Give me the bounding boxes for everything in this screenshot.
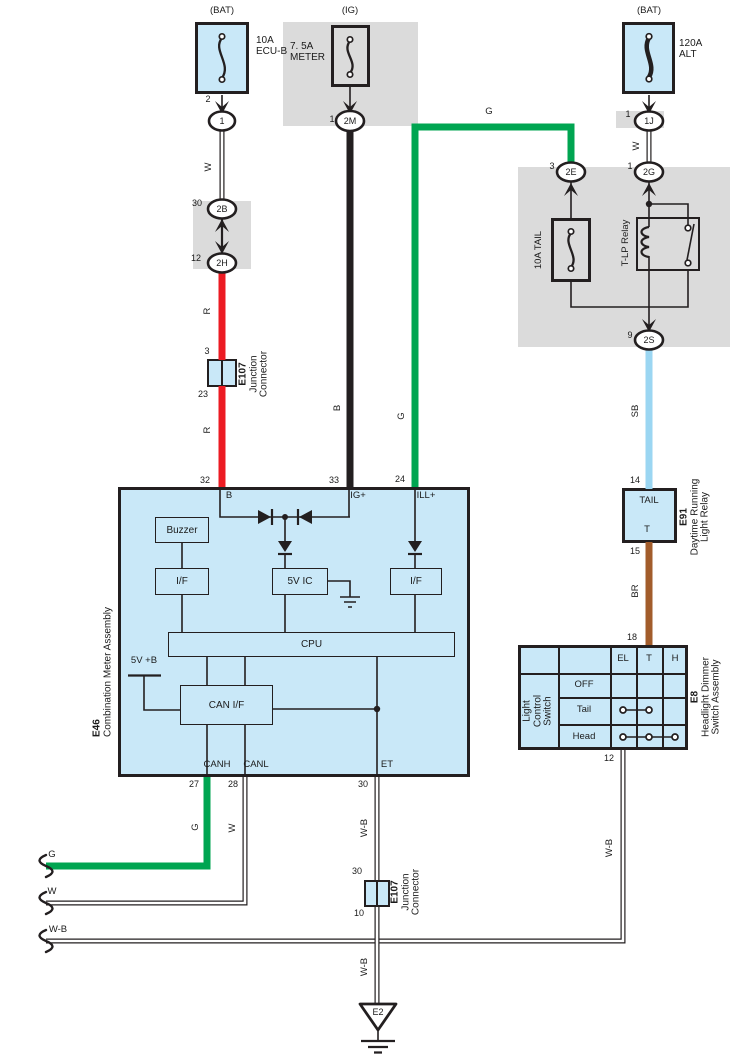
diode-ill: [408, 541, 422, 554]
relay-contact-bottom: [685, 260, 691, 266]
e8-col-el: EL: [617, 654, 629, 664]
connector-2m-label: 2M: [344, 116, 357, 126]
e107-label-bottom: E107 Junction Connector: [390, 869, 422, 915]
wire-label-w: W: [228, 824, 238, 833]
pin-9-2s: 9: [627, 330, 632, 340]
et-junction-dot: [374, 706, 380, 712]
diode-junction-dot: [282, 514, 288, 520]
wire-label-w: W: [204, 163, 214, 172]
pin-1-2g: 1: [627, 161, 632, 171]
component-code: E107: [390, 869, 401, 915]
component-code: E46: [93, 607, 104, 737]
source-label-bat-right: (BAT): [637, 6, 661, 16]
e46-label: E46 Combination Meter Assembly: [93, 607, 114, 737]
fuse-rating: 7. 5A: [290, 41, 325, 52]
wire-label-w: W: [48, 887, 57, 897]
component-name: Combination Meter Assembly: [103, 607, 114, 737]
switch-name-line: Switch: [543, 695, 554, 727]
pin-1-1j: 1: [625, 109, 630, 119]
supply-5v-label: 5V +B: [131, 656, 157, 666]
e8-row-tail: Tail: [577, 705, 591, 715]
e107-label-top: E107 Junction Connector: [238, 351, 270, 397]
tlp-relay-label: T-LP Relay: [621, 220, 631, 267]
wire-label-g: G: [48, 850, 55, 860]
terminal-ig: IG+: [350, 491, 366, 501]
pin-30-et: 30: [358, 779, 368, 789]
meter-internal-lines: [144, 487, 415, 777]
fuse-rating: 10A: [256, 35, 287, 46]
e91-label: E91 Daytime Running Light Relay: [679, 479, 711, 556]
component-name: Light Relay: [700, 479, 711, 556]
pin-28: 28: [228, 779, 238, 789]
wire-w-canl: [46, 777, 245, 903]
terminal-ill: ILL+: [417, 491, 436, 501]
wire-label-g: G: [485, 107, 492, 117]
pin-30-e107b: 30: [352, 866, 362, 876]
wire-label-wb: W-B: [605, 839, 615, 857]
connector-2g-label: 2G: [643, 167, 655, 177]
wire-wb-bottom-run: [46, 750, 623, 941]
e8-switch-name: Light Control Switch: [522, 695, 554, 727]
pin-2: 2: [205, 94, 210, 104]
pin-32: 32: [200, 475, 210, 485]
switch-contact-lines: [623, 710, 675, 737]
component-name: Connector: [411, 869, 422, 915]
wire-g-illumination: [415, 127, 571, 487]
connector-1-label: 1: [219, 116, 224, 126]
fuse-name: METER: [290, 52, 325, 63]
relay-coil-symbol: [642, 227, 650, 257]
ground-e2-label: E2: [372, 1007, 383, 1017]
wire-label-b: B: [333, 405, 343, 411]
fuse-symbol-tail: [568, 229, 573, 271]
wire-g-canh: [46, 777, 207, 866]
wire-label-sb: SB: [631, 405, 641, 418]
pin-24: 24: [395, 474, 405, 484]
pin-3-2e: 3: [549, 161, 554, 171]
source-label-ig: (IG): [342, 6, 358, 16]
fuse-rating: 120A: [679, 38, 702, 49]
e8-label: E8 Headlight Dimmer Switch Assembly: [690, 657, 722, 737]
terminal-canh: CANH: [204, 760, 231, 770]
fuse-symbol-meter: [347, 37, 352, 77]
diode-to-5v-ic: [278, 541, 292, 554]
switch-name-line: Light: [522, 695, 533, 727]
source-label-bat-left: (BAT): [210, 6, 234, 16]
e91-tail-title: TAIL: [639, 496, 658, 506]
component-name: Switch Assembly: [711, 657, 722, 737]
diode-from-b: [258, 509, 272, 525]
e91-terminal-t: T: [644, 525, 650, 535]
connector-2b-label: 2B: [216, 204, 227, 214]
fuse-symbol-alt: [646, 34, 652, 82]
diode-from-ig: [298, 509, 312, 525]
pin-23-e107: 23: [198, 389, 208, 399]
wire-label-wb: W-B: [49, 925, 67, 935]
tail-fuse-label: 10A TAIL: [534, 231, 544, 269]
connector-2h-label: 2H: [216, 258, 228, 268]
terminal-canl: CANL: [243, 760, 268, 770]
e8-col-h: H: [672, 654, 679, 664]
connector-1j-label: 1J: [644, 116, 654, 126]
fuse-meter-name: 7. 5A METER: [290, 41, 325, 63]
wire-label-g: G: [191, 823, 201, 830]
terminal-et: ET: [381, 760, 393, 770]
wire-label-wb: W-B: [360, 819, 370, 837]
ground-symbol-5v-ic: [340, 597, 360, 607]
wire-label-r: R: [203, 427, 213, 434]
pin-30-2b: 30: [192, 198, 202, 208]
e8-col-t: T: [646, 654, 652, 664]
pin-12-2h: 12: [191, 253, 201, 263]
wire-label-r: R: [203, 308, 213, 315]
component-code: E8: [690, 657, 701, 737]
fuse-ecu-b-name: 10A ECU-B: [256, 35, 287, 57]
fuse-name: ECU-B: [256, 46, 287, 57]
wire-label-br: BR: [631, 584, 641, 597]
connector-arrows: [215, 101, 656, 332]
pin-1-2m: 1: [329, 114, 334, 124]
pin-33: 33: [329, 475, 339, 485]
component-name: Connector: [259, 351, 270, 397]
wiring-diagram-page: Buzzer I/F 5V IC I/F CPU CAN I/F: [0, 0, 732, 1063]
relay-junction-dot: [646, 201, 652, 207]
fuse-stub-lines: [222, 87, 649, 112]
wire-label-g: G: [397, 412, 407, 419]
wire-label-w: W: [632, 142, 642, 151]
pin-10-e107b: 10: [354, 908, 364, 918]
pin-12-e8: 12: [604, 753, 614, 763]
fuse-alt-name: 120A ALT: [679, 38, 702, 60]
ground-symbol-e2: [361, 1041, 395, 1053]
pin-27: 27: [189, 779, 199, 789]
e8-row-off: OFF: [575, 680, 594, 690]
fuse-symbol-ecu-b: [219, 34, 225, 82]
connector-2e-label: 2E: [565, 167, 576, 177]
wire-layer: [0, 0, 732, 1063]
component-code: E107: [238, 351, 249, 397]
pin-15: 15: [630, 546, 640, 556]
connector-2s-label: 2S: [643, 335, 654, 345]
fuse-name: ALT: [679, 49, 702, 60]
pin-3-e107: 3: [204, 346, 209, 356]
e8-row-head: Head: [573, 732, 596, 742]
pin-14: 14: [630, 475, 640, 485]
wire-label-wb: W-B: [360, 958, 370, 976]
component-code: E91: [679, 479, 690, 556]
relay-contact-top: [685, 225, 691, 231]
terminal-b: B: [226, 491, 232, 501]
pin-18: 18: [627, 632, 637, 642]
